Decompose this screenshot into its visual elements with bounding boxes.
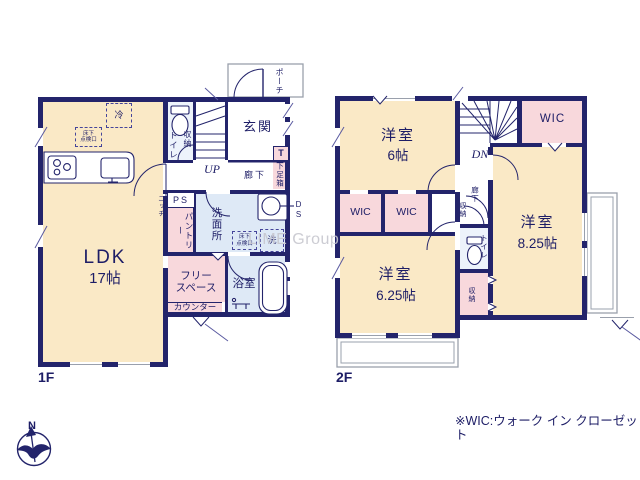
fridge-label: 冷 xyxy=(114,110,123,120)
shoe-box-t: T xyxy=(273,146,289,161)
wall-segment xyxy=(455,315,587,320)
wall-segment xyxy=(340,232,455,236)
stairs-up-label: UP xyxy=(197,163,227,177)
duct-space-label: DS xyxy=(294,200,302,218)
stairs-1f xyxy=(196,106,225,158)
west-room-size: 6帖 xyxy=(376,148,420,164)
entrance-label: 玄関 xyxy=(236,120,280,135)
kitchen-fixture xyxy=(44,152,134,183)
balcony-bottom xyxy=(337,338,458,367)
shoe-box-t-label: T xyxy=(278,148,284,158)
ldk-size-label: 17帖 xyxy=(72,270,138,287)
stairs-2f xyxy=(460,101,517,143)
pantry-label: パントリー xyxy=(176,210,193,252)
ldk-label: LDK xyxy=(72,247,138,269)
shoe-box-label: 下足箱 xyxy=(276,162,284,188)
burner xyxy=(54,160,61,167)
compass-north-label: N xyxy=(24,420,40,433)
wall-segment xyxy=(582,96,587,320)
bath-drain xyxy=(232,298,235,301)
wall-segment xyxy=(368,190,398,194)
stairs-dn-label: DN xyxy=(465,148,495,162)
wic-footnote: ※WIC:ウォーク イン クローゼット xyxy=(455,414,640,443)
toilet-2f-label: トイレ xyxy=(480,232,488,262)
wall-segment xyxy=(455,250,460,315)
toilet-tank xyxy=(171,106,189,114)
burner xyxy=(64,164,71,171)
wic-ne-label: WIC xyxy=(525,113,580,126)
vanity-basin xyxy=(262,197,280,215)
bathtub-inner xyxy=(263,266,284,311)
washroom-label: 洗面所 xyxy=(211,204,222,244)
window xyxy=(38,225,43,247)
toilet-storage-label: 収納 xyxy=(183,128,191,150)
wall-segment xyxy=(416,190,455,194)
pipe-space: PS xyxy=(167,192,195,208)
east-room-size: 8.25帖 xyxy=(505,236,570,252)
bath-label: 浴室 xyxy=(228,278,260,291)
wall-segment xyxy=(428,194,432,236)
burner xyxy=(54,169,60,175)
wall-segment xyxy=(488,180,493,276)
hallway-1f-label: 廊下 xyxy=(238,170,272,180)
wall-segment xyxy=(488,311,493,315)
floor-hatch-label: 床下 点検口 xyxy=(80,131,97,144)
floor2-label: 2F xyxy=(336,369,370,385)
toilet2f-door-arc xyxy=(464,206,484,226)
wall-segment xyxy=(490,143,542,147)
wall-segment xyxy=(455,101,460,165)
free-space-label: フリー スペース xyxy=(166,270,226,294)
wall-segment xyxy=(460,269,488,273)
west-room-label: 洋室 xyxy=(372,127,424,144)
south-room-label: 洋室 xyxy=(368,266,423,283)
watermark: LIME Group xyxy=(248,231,339,249)
v-marker xyxy=(488,303,496,311)
counter-label: カウンター xyxy=(168,303,222,313)
wic-sw1-label: WIC xyxy=(340,206,381,218)
bath-door-arc xyxy=(228,256,252,280)
niche-label: ニッチ xyxy=(156,193,163,219)
bath-counter xyxy=(232,304,250,309)
porch-label: ポーチ xyxy=(275,67,283,95)
floor-hatch-ldk: 床下 点検口 xyxy=(75,127,102,147)
wall-segment xyxy=(38,97,290,102)
wall-segment xyxy=(455,315,460,338)
stove xyxy=(48,156,76,179)
wall-segment xyxy=(340,190,350,194)
wic-sw2-label: WIC xyxy=(385,206,428,218)
fridge-space: 冷 xyxy=(106,103,132,128)
pipe-space-label: PS xyxy=(173,195,189,205)
v-marker xyxy=(612,320,628,329)
wall-segment xyxy=(250,252,290,256)
wall-segment xyxy=(517,101,522,147)
window-center-lines xyxy=(70,99,634,365)
stair-treads-1f xyxy=(196,106,225,158)
kitchen-sink xyxy=(101,158,129,178)
wall-segment xyxy=(193,102,196,160)
toilet-1f-label: トイレ xyxy=(169,129,178,161)
wall-segment xyxy=(163,102,168,163)
balcony-bottom-inner xyxy=(341,342,454,363)
v-marker xyxy=(548,143,562,151)
hallway-2f-label: 廊下 xyxy=(471,182,479,206)
floor1-label: 1F xyxy=(38,369,72,385)
v-marker xyxy=(211,253,225,260)
east-room-label: 洋室 xyxy=(510,214,565,231)
wall-segment xyxy=(566,143,587,147)
floorplan-canvas: LDK 17帖 冷 床下 点検口 トイレ 収納 UP 玄関 ポーチ 廊下 T 下… xyxy=(0,0,640,480)
ldk-door-arc xyxy=(134,164,166,196)
porch-outline xyxy=(228,64,303,97)
balcony-right xyxy=(587,193,617,313)
compass-bird-shape xyxy=(17,444,51,459)
wall-segment xyxy=(163,312,168,367)
wall-segment xyxy=(230,190,290,194)
west-room-door-arc xyxy=(428,165,455,192)
wall-segment xyxy=(488,284,493,303)
south-storage-label: 収納 xyxy=(468,284,475,306)
hall-storage-label: 収納 xyxy=(459,198,466,222)
balcony-right-inner xyxy=(591,197,613,309)
wall-segment xyxy=(225,102,228,160)
east-room-door-arc xyxy=(493,155,518,180)
v-marker xyxy=(488,276,496,284)
south-room-size: 6.25帖 xyxy=(365,288,427,304)
